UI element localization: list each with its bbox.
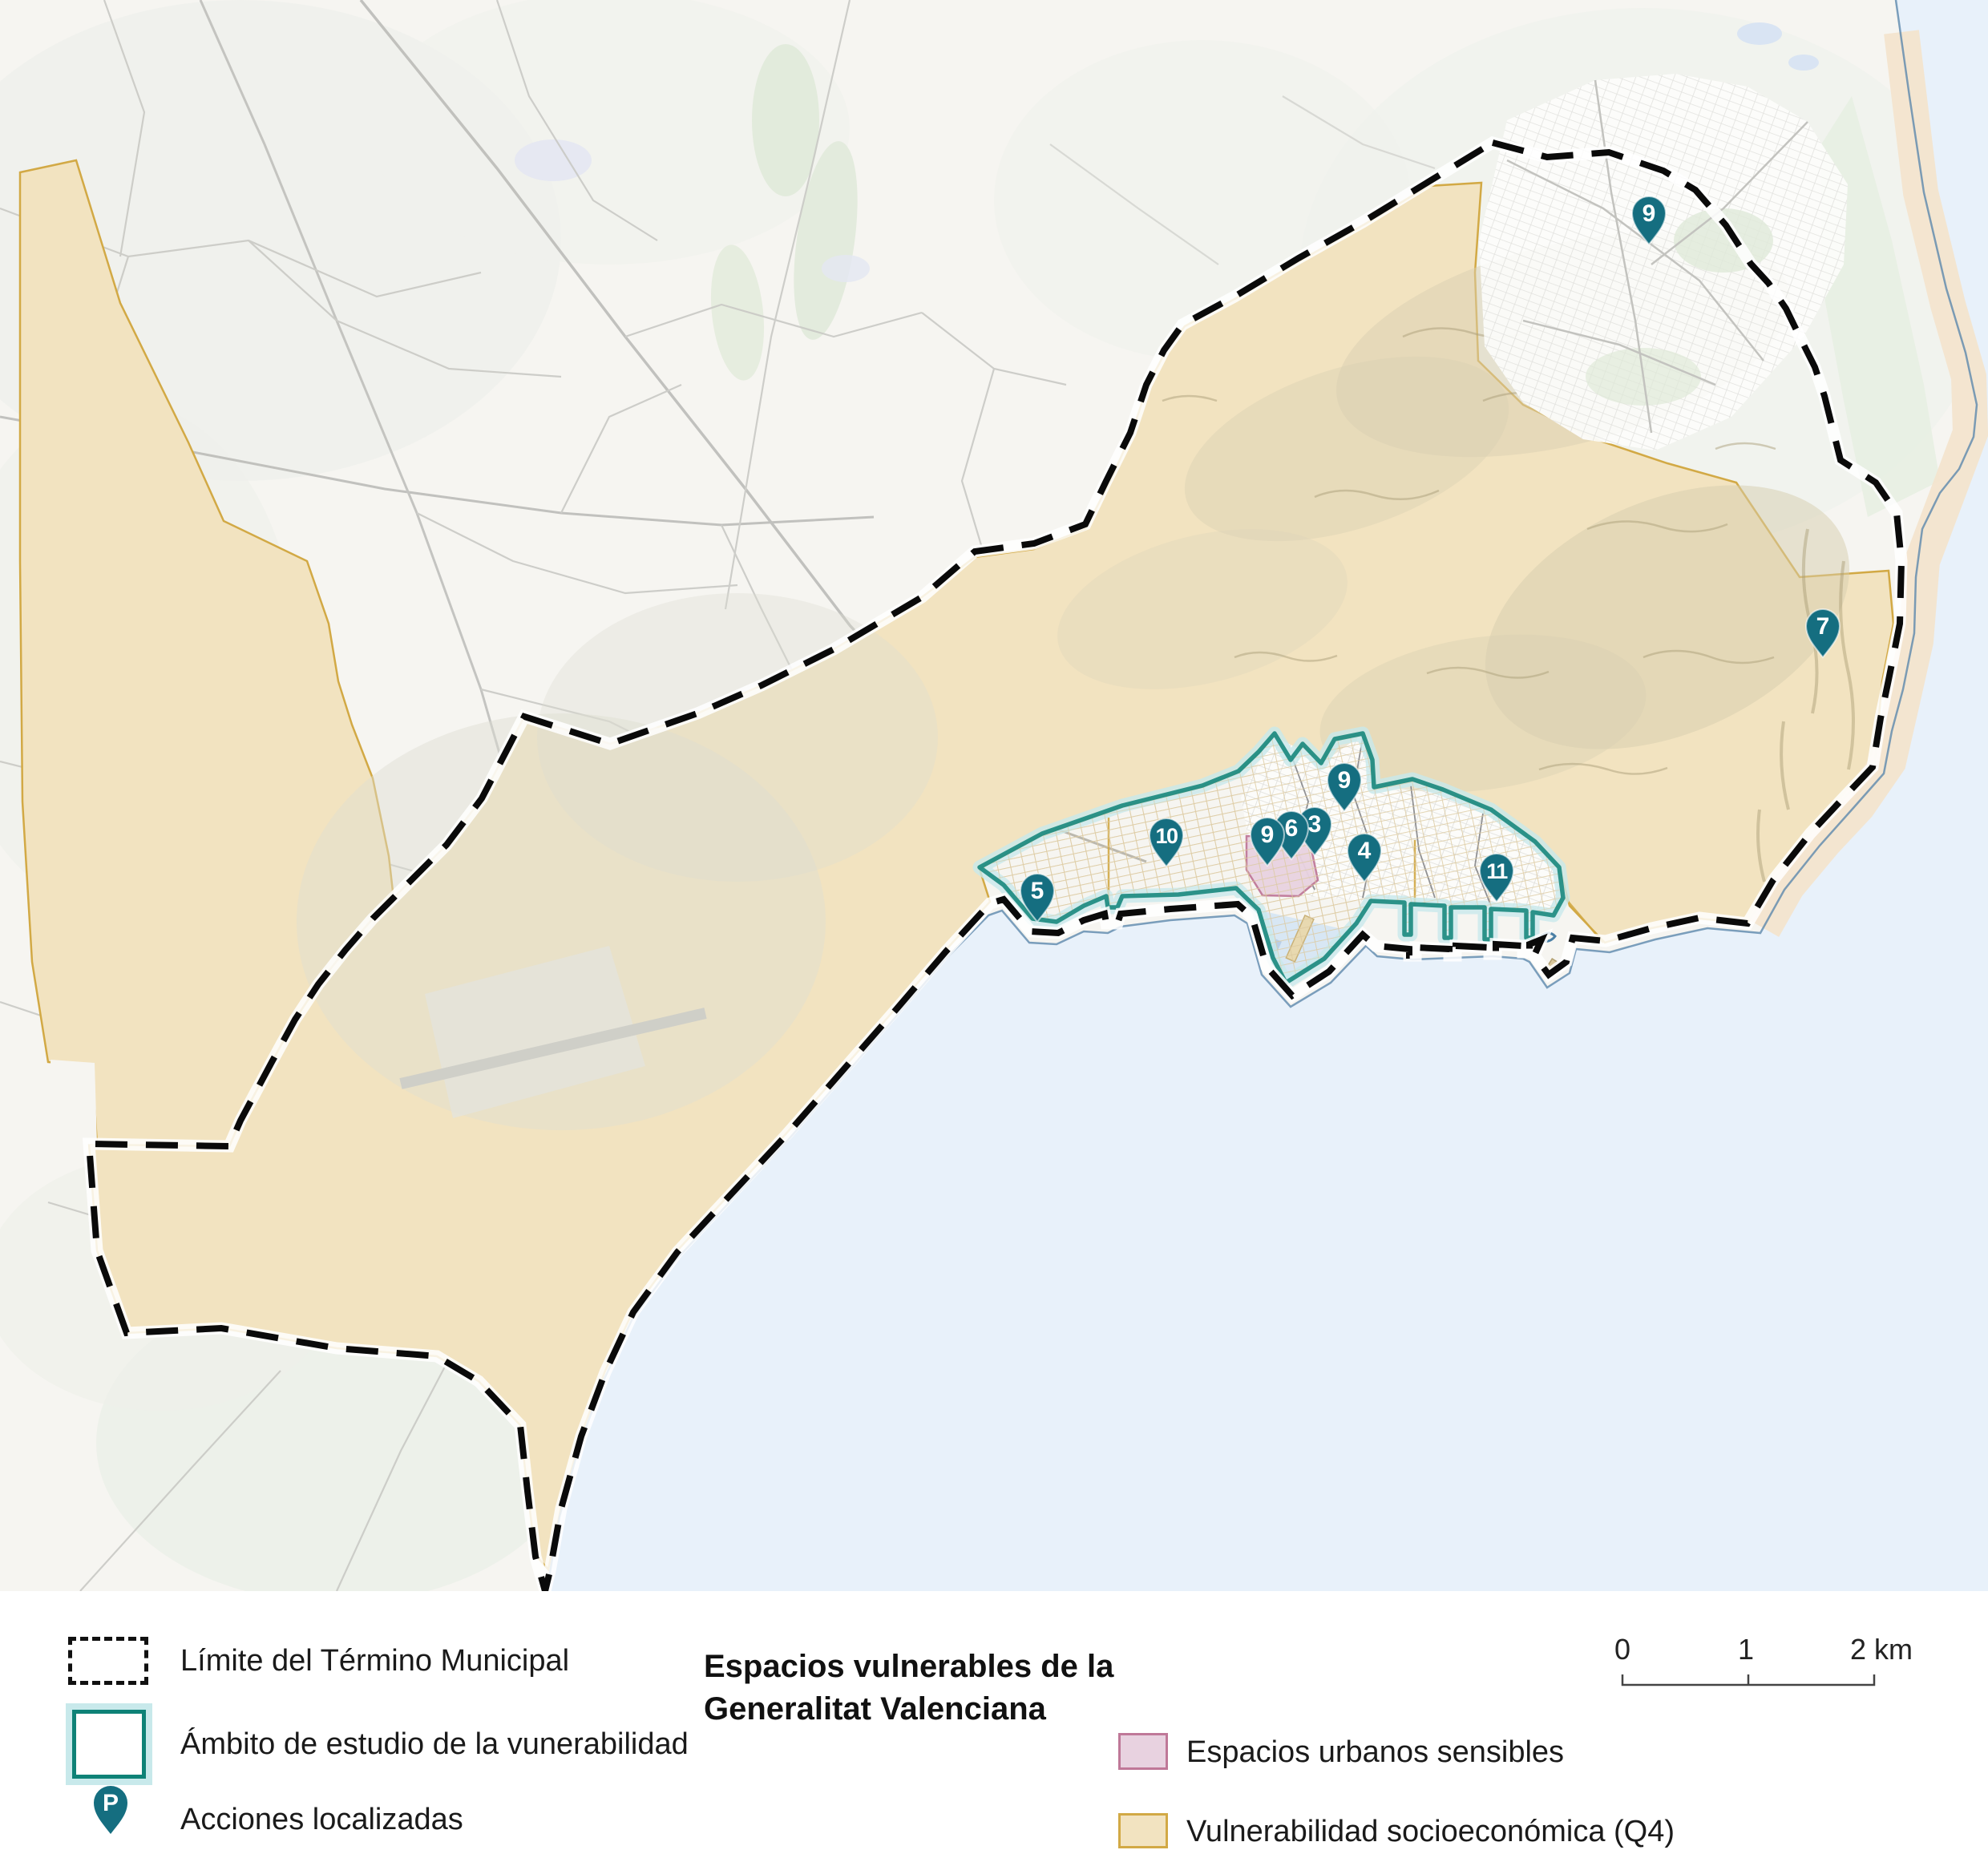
map-marker-number: 9 [1261, 822, 1275, 848]
legend: Límite del Término Municipal Ámbito de e… [0, 1591, 1988, 1850]
map-marker-number: 7 [1816, 613, 1830, 640]
map-marker-number: 4 [1358, 838, 1372, 864]
legend-pin-icon: P [87, 1782, 135, 1838]
map-marker-number: 9 [1338, 767, 1352, 794]
map-marker-number: 5 [1031, 878, 1045, 904]
map-canvas[interactable]: 979104369511 [0, 0, 1988, 1591]
white-town-pocket [51, 1060, 97, 1145]
legend-group-title: Espacios vulnerables de la Generalitat V… [704, 1646, 1113, 1731]
scalebar-label-1: 1 [1738, 1633, 1754, 1666]
map-marker-number: 10 [1155, 824, 1178, 848]
legend-pin-letter: P [103, 1790, 119, 1816]
map-stage: 979104369511 Límite del Término Municipa… [0, 0, 1988, 1850]
legend-label-localized-actions: Acciones localizadas [180, 1801, 463, 1838]
legend-label-q4: Vulnerabilidad socioeconómica (Q4) [1186, 1813, 1675, 1850]
map-marker-number: 11 [1486, 859, 1508, 883]
scalebar-label-2km: 2 km [1850, 1633, 1913, 1666]
map-marker-number: 9 [1643, 200, 1656, 227]
legend-group-title-line2: Generalitat Valenciana [704, 1688, 1113, 1731]
map-marker-number: 3 [1308, 811, 1322, 838]
scalebar-label-0: 0 [1614, 1633, 1630, 1666]
legend-swatch-municipal-limit [68, 1637, 148, 1685]
legend-swatch-study-area [72, 1710, 146, 1779]
legend-label-study-area: Ámbito de estudio de la vunerabilidad [180, 1726, 689, 1763]
legend-swatch-q4 [1118, 1813, 1168, 1848]
legend-swatch-sensitive-urban [1118, 1733, 1168, 1770]
legend-group-title-line1: Espacios vulnerables de la [704, 1646, 1113, 1688]
legend-label-municipal-limit: Límite del Término Municipal [180, 1642, 569, 1679]
scalebar [1618, 1671, 1882, 1689]
legend-label-sensitive-urban: Espacios urbanos sensibles [1186, 1734, 1564, 1771]
map-marker-number: 6 [1285, 815, 1299, 842]
